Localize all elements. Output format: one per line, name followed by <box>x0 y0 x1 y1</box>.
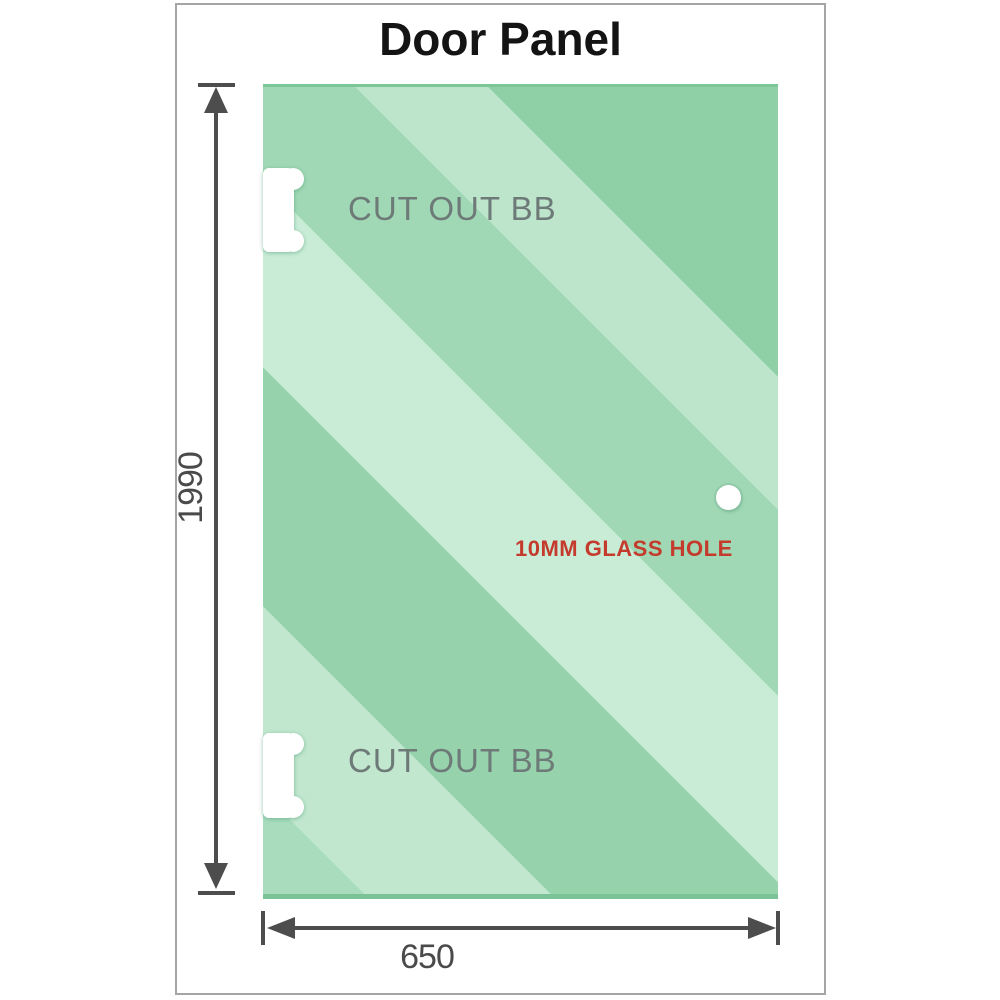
cutout-notch-top-icon <box>263 165 311 257</box>
diagram-title: Door Panel <box>175 12 826 66</box>
dimension-line-horizontal <box>290 926 750 930</box>
cutout-notch-bottom-icon <box>263 730 311 822</box>
cutout-label-top: CUT OUT BB <box>348 190 557 228</box>
dimension-line-vertical <box>214 105 218 867</box>
cutout-label-bottom: CUT OUT BB <box>348 742 557 780</box>
glass-panel: CUT OUT BB CUT OUT BB 10MM GLASS HOLE <box>263 84 778 899</box>
glass-hole-label: 10MM GLASS HOLE <box>515 536 733 562</box>
panel-top-edge <box>263 84 778 87</box>
dimension-tick <box>198 891 235 895</box>
dimension-tick <box>776 911 780 945</box>
dimension-tick <box>261 911 265 945</box>
arrow-right-icon <box>748 917 776 939</box>
panel-bottom-edge <box>263 894 778 899</box>
arrow-down-icon <box>204 863 228 889</box>
width-dimension-label: 650 <box>377 938 477 977</box>
glass-hole-icon <box>716 485 741 510</box>
door-panel-diagram: Door Panel CUT OUT BB CUT OUT BB 10MM GL… <box>0 0 1000 1000</box>
height-dimension-label: 1990 <box>176 443 206 533</box>
